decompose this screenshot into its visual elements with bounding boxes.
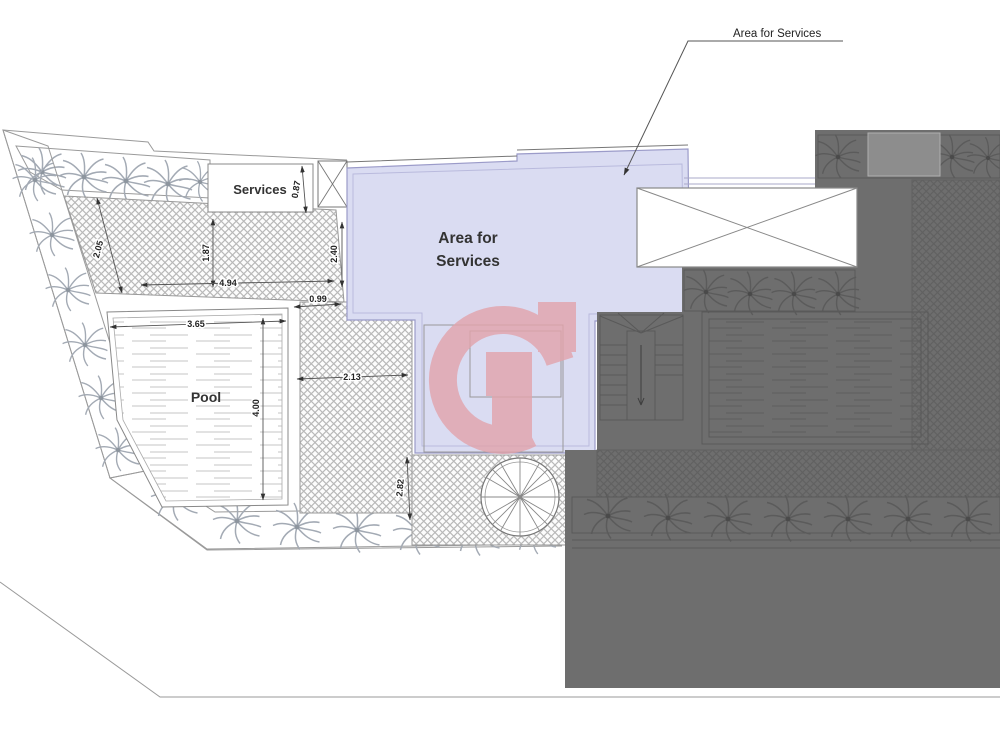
site-plan-svg: Services Pool Area for Services (0, 0, 1000, 750)
palm-tree-icon (30, 213, 75, 256)
crossed-void-icon (318, 161, 347, 207)
upper-right-wall-lines (684, 178, 818, 184)
skylight-box (868, 133, 940, 176)
dimension-label: 4.00 (251, 399, 261, 417)
neighbor-pool (702, 312, 928, 444)
leader-label: Area for Services (733, 28, 821, 40)
palm-tree-icon (144, 160, 192, 207)
dimension-label: 2.82 (394, 479, 405, 497)
spiral-staircase-icon (481, 458, 559, 536)
area-for-services-label-line1: Area for (438, 230, 497, 247)
palm-tree-icon (13, 158, 58, 201)
dimension-label: 1.87 (201, 244, 211, 262)
dimension-label: 0.99 (309, 294, 327, 304)
dimension-label: 2.40 (329, 245, 339, 263)
site-plan-canvas: Services Pool Area for Services (0, 0, 1000, 750)
dimension-label: 4.94 (219, 278, 237, 288)
dimension-label: 2.13 (343, 372, 361, 382)
pool-label: Pool (191, 389, 221, 405)
area-for-services-label-line2: Services (436, 253, 500, 270)
palm-tree-icon (102, 157, 150, 204)
dimension-label: 3.65 (187, 319, 205, 329)
crossed-void-icon (637, 188, 857, 267)
services-room-label: Services (233, 182, 287, 197)
